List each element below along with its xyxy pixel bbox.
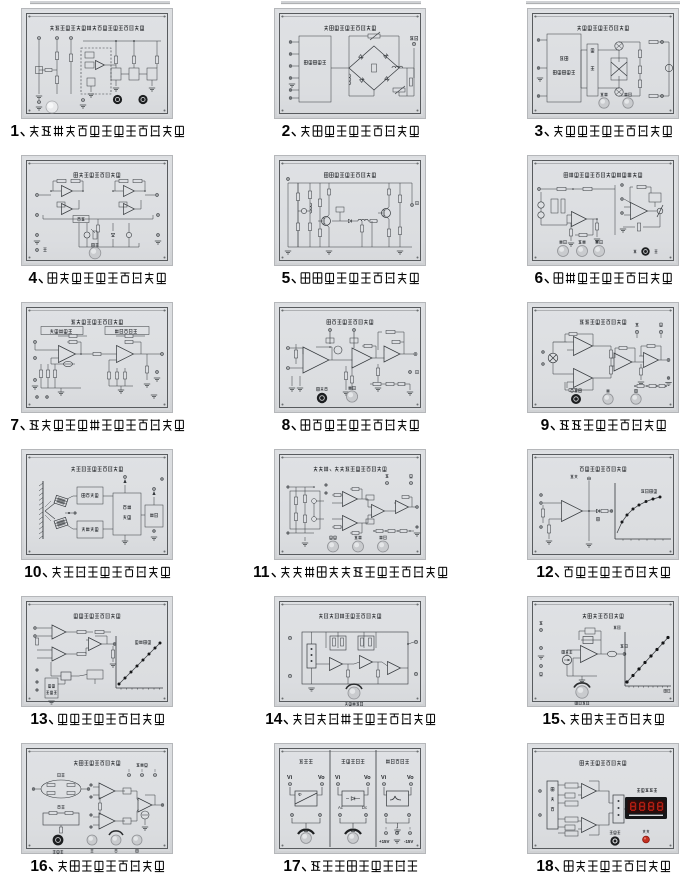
svg-text:Vi: Vi bbox=[335, 775, 341, 781]
svg-text:14: 14 bbox=[265, 711, 283, 728]
svg-text:16: 16 bbox=[30, 858, 48, 875]
svg-text:Ac: Ac bbox=[338, 805, 343, 810]
svg-text:18: 18 bbox=[536, 858, 554, 875]
svg-text:8: 8 bbox=[282, 417, 291, 434]
svg-text:3: 3 bbox=[535, 123, 544, 140]
svg-text:Vo: Vo bbox=[318, 775, 325, 781]
svg-text:Vo: Vo bbox=[364, 775, 371, 781]
svg-text:12: 12 bbox=[536, 564, 553, 581]
svg-text:-15V: -15V bbox=[404, 839, 413, 844]
svg-text:+15V: +15V bbox=[379, 839, 389, 844]
svg-text:15: 15 bbox=[543, 711, 561, 728]
svg-text:5: 5 bbox=[282, 270, 291, 287]
svg-text:10: 10 bbox=[24, 564, 41, 581]
svg-text:Vi: Vi bbox=[287, 775, 293, 781]
svg-text:11: 11 bbox=[253, 564, 270, 581]
svg-text:17: 17 bbox=[283, 858, 300, 875]
svg-text:7: 7 bbox=[10, 417, 19, 434]
svg-text:13: 13 bbox=[30, 711, 48, 728]
svg-text:9: 9 bbox=[541, 417, 550, 434]
svg-text:1: 1 bbox=[10, 123, 19, 140]
svg-text:Φ: Φ bbox=[298, 792, 302, 797]
svg-text:Vi: Vi bbox=[381, 775, 387, 781]
svg-text:2: 2 bbox=[282, 123, 291, 140]
svg-text:Vo: Vo bbox=[407, 775, 414, 781]
svg-text:4: 4 bbox=[29, 270, 38, 287]
svg-text:Dc: Dc bbox=[362, 805, 367, 810]
svg-text:6: 6 bbox=[535, 270, 544, 287]
